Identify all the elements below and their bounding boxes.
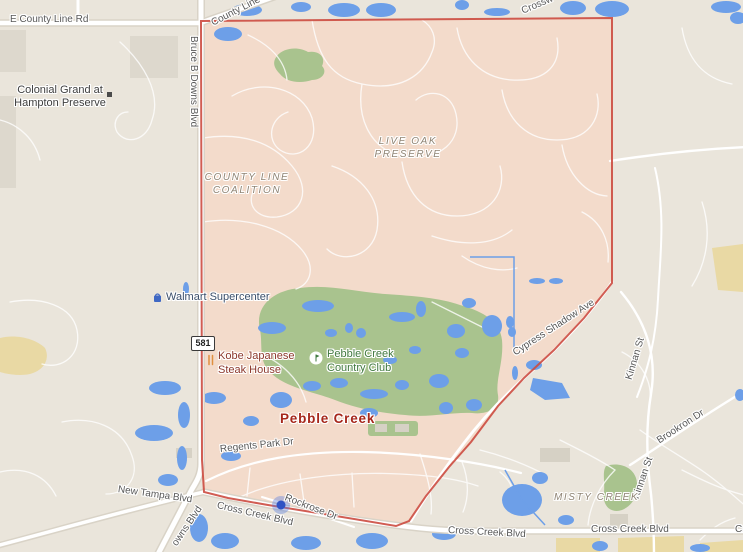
- road-label-bruce-b-downs: Bruce B Downs Blvd: [188, 36, 199, 127]
- area-label-misty-creek: MISTY CREEK: [554, 491, 639, 504]
- route-581-shield: 581: [191, 336, 215, 351]
- poi-label-walmart[interactable]: Walmart Supercenter: [166, 290, 270, 304]
- road-label-cross-creek-blvd-right-clipped: Cross Creek Blvd: [735, 524, 743, 535]
- poi-marker-colonial-grand[interactable]: [107, 92, 112, 97]
- poi-label-kobe[interactable]: Kobe Japanese Steak House: [218, 349, 294, 377]
- area-label-county-line-coalition: COUNTY LINE COALITION: [195, 171, 299, 197]
- poi-label-colonial-grand[interactable]: Colonial Grand at Hampton Preserve: [10, 84, 110, 110]
- area-label-live-oak-preserve: LIVE OAK PRESERVE: [356, 135, 460, 161]
- map-tiles: [0, 0, 743, 552]
- poi-label-pebble-creek-country-club[interactable]: Pebble Creek Country Club: [327, 347, 394, 375]
- map-canvas[interactable]: E County Line Rd County Line Crossw Colo…: [0, 0, 743, 552]
- road-label-e-county-line-rd: E County Line Rd: [10, 14, 88, 25]
- neighborhood-label-pebble-creek: Pebble Creek: [280, 411, 375, 426]
- road-label-cross-creek-blvd-bottom: Cross Creek Blvd: [591, 524, 669, 535]
